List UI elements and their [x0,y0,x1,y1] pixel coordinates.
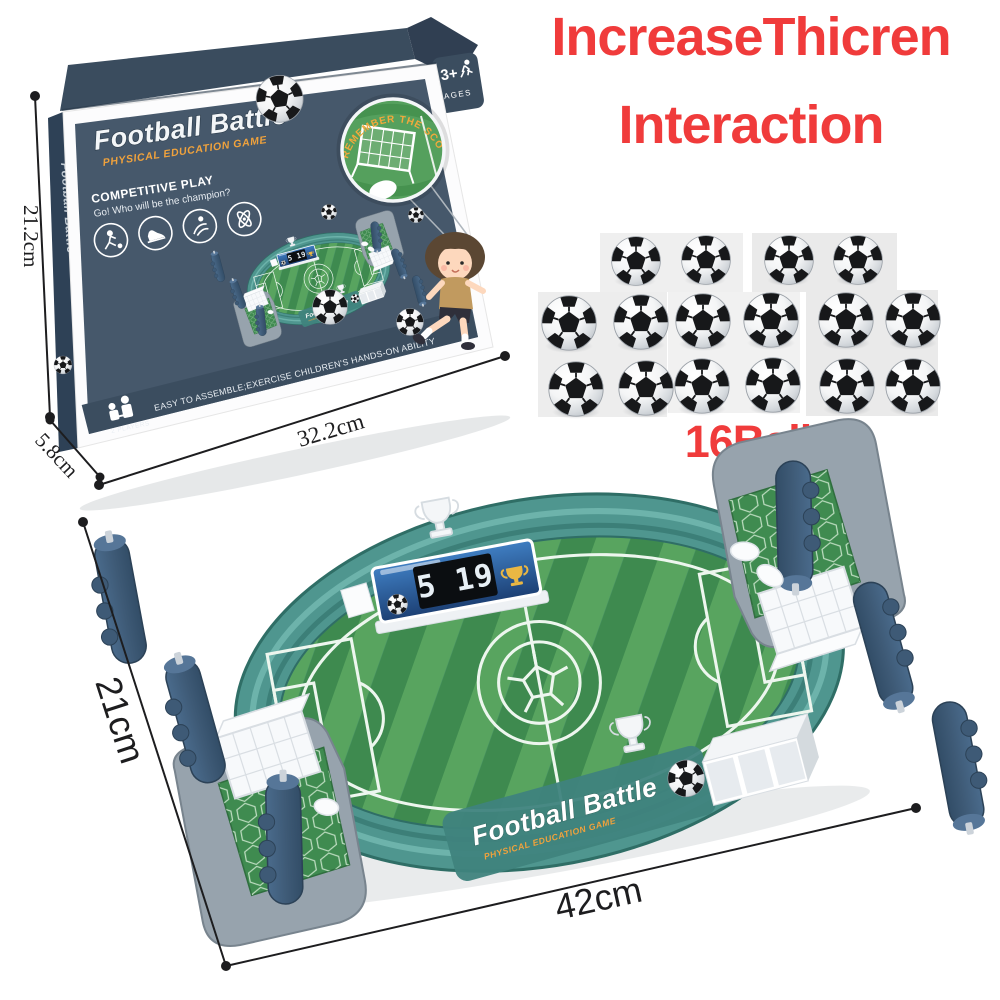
ages-value: 3+ [439,65,459,85]
soccer-ball-icon [763,234,815,286]
soccer-ball-icon [884,357,942,415]
soccer-ball-icon [744,356,802,414]
soccer-ball-icon [832,234,884,286]
product-listing-image: 5 19 Football Battle PHYSICAL EDUCATION … [0,0,1000,1000]
soccer-ball-icon [818,357,876,415]
soccer-ball-icon [742,291,800,349]
soccer-ball-icon [540,294,598,352]
headline-line1: IncreaseThicren [505,10,997,64]
soccer-ball-icon [674,292,732,350]
soccer-ball-icon [617,359,675,417]
product-stadium [83,381,997,983]
product-photo [115,450,925,900]
soccer-ball-icon [884,291,942,349]
soccer-ball-icon [680,234,732,286]
soccer-ball-icon [612,293,670,351]
soccer-ball-icon [673,357,731,415]
headline-line2: Interaction [505,98,997,152]
soccer-ball-icon [817,291,875,349]
soccer-ball-icon [547,360,605,418]
soccer-ball-icon [610,235,662,287]
retail-box: 3+ AGES Football Battle EASY TO ASSEMBLE… [15,15,535,495]
